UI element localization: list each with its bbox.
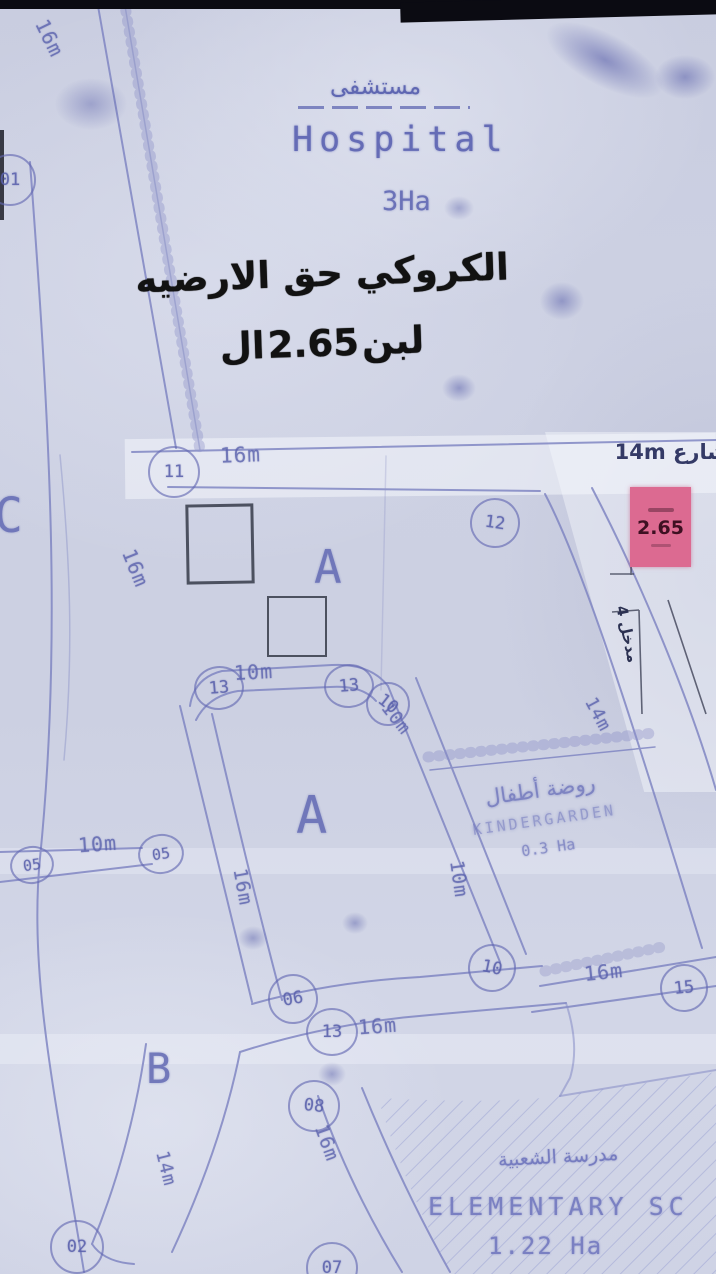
school-area: 1.22 Ha [488,1232,603,1260]
plot-number-circle: 11 [148,446,200,498]
annotation-line2-al: ال [219,324,265,369]
highlight-value: 2.65 [637,517,684,539]
hospital-area: 3Ha [382,186,431,217]
measurement-label: 16m [220,442,262,467]
street-label: شارع 14m [598,440,716,464]
scanned-plot-map: مستشفى Hospital 3Ha الكروكي حق الارضيه ا… [0,0,716,1274]
annotation-line2-number: 2.65 [267,321,360,367]
marked-plot-square [267,596,327,657]
plot-number-circle: 02 [50,1220,104,1274]
block-letter: A [314,540,342,594]
measurement-label: 10m [233,659,273,685]
road-network [0,0,716,1274]
block-letter: B [146,1044,171,1093]
hospital-label-english: Hospital [292,120,509,160]
illegible-small-text [648,508,674,512]
illegible-small-text [651,544,671,547]
annotation-line2-laban: لبن [361,318,425,363]
hospital-label-arabic: مستشفى [330,74,421,100]
highlight-marker: 2.65 [630,487,691,567]
measurement-label: 16m [357,1013,398,1040]
plot-number-circle: 13 [306,1008,358,1056]
measurement-label: 10m [77,831,118,858]
measurement-label: 16m [583,958,624,986]
block-letter: A [296,786,327,846]
school-name-english: ELEMENTARY SC [428,1192,689,1221]
hospital-underline [298,106,470,109]
block-letter: C [0,488,23,544]
marked-plot-square [185,503,254,584]
